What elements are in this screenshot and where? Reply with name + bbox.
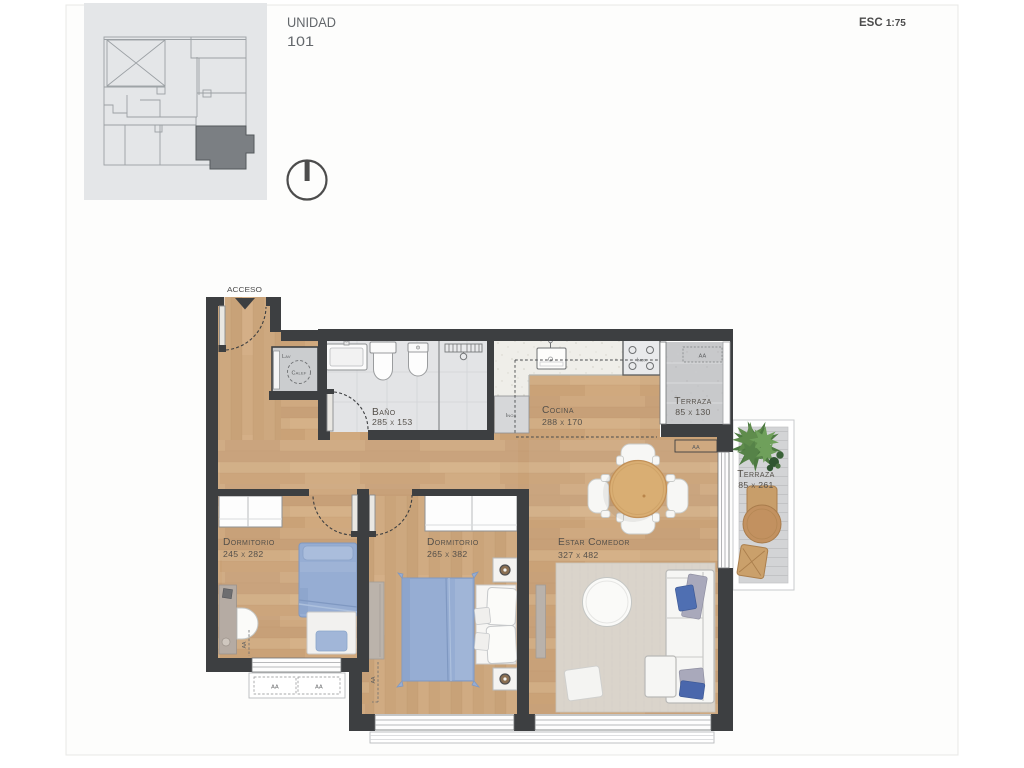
svg-text:101: 101 xyxy=(287,33,314,49)
svg-text:327 x 482: 327 x 482 xyxy=(558,550,599,560)
svg-text:UNIDAD: UNIDAD xyxy=(287,14,336,30)
svg-text:85 x 130: 85 x 130 xyxy=(675,407,710,417)
svg-text:Dormitorio: Dormitorio xyxy=(427,537,479,548)
svg-text:Lav: Lav xyxy=(282,354,291,360)
svg-text:Terraza: Terraza xyxy=(737,469,774,480)
svg-text:AA: AA xyxy=(271,685,279,691)
svg-text:285 x 153: 285 x 153 xyxy=(372,417,413,427)
svg-text:85 x 261: 85 x 261 xyxy=(738,480,773,490)
svg-text:Estar Comedor: Estar Comedor xyxy=(558,537,630,548)
svg-text:Cocina: Cocina xyxy=(542,405,574,416)
svg-text:AA: AA xyxy=(242,641,248,648)
svg-text:245 x 282: 245 x 282 xyxy=(223,549,264,559)
svg-text:265 x 382: 265 x 382 xyxy=(427,549,468,559)
svg-text:AA: AA xyxy=(371,676,377,683)
svg-text:AA: AA xyxy=(315,685,323,691)
svg-text:Terraza: Terraza xyxy=(674,396,711,407)
svg-text:288 x 170: 288 x 170 xyxy=(542,417,583,427)
svg-text:ESC 1:75: ESC 1:75 xyxy=(859,17,906,29)
svg-text:ACCESO: ACCESO xyxy=(227,285,262,294)
svg-text:Calef: Calef xyxy=(292,371,307,377)
svg-text:AA: AA xyxy=(692,445,700,451)
svg-text:Inox: Inox xyxy=(636,358,646,364)
svg-text:AA: AA xyxy=(699,354,707,360)
svg-text:Dormitorio: Dormitorio xyxy=(223,537,275,548)
